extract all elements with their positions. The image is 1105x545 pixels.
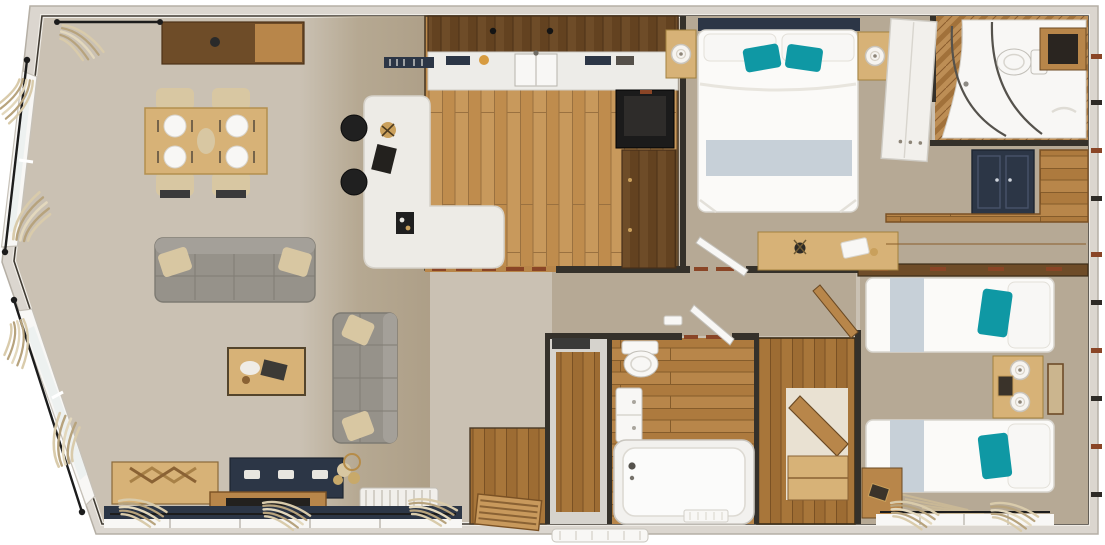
wall-hall-bottom-left <box>610 333 682 340</box>
plate <box>226 146 248 168</box>
headboard <box>698 18 860 31</box>
shower-drain <box>963 81 968 86</box>
bed-runner <box>890 278 924 352</box>
chevron-tv-cabinet <box>112 462 218 504</box>
floor-plan-svg <box>0 0 1105 545</box>
large-sofa <box>155 238 315 302</box>
ensuite-toilet <box>997 49 1031 75</box>
gold-dish <box>870 248 878 256</box>
tap <box>533 50 538 55</box>
bar-stool <box>341 115 367 141</box>
plate <box>226 115 248 137</box>
chair-base <box>216 190 246 198</box>
table-centrepiece <box>197 128 215 154</box>
downlight <box>547 28 553 34</box>
chair-base <box>160 190 190 198</box>
teal-pillow <box>785 44 824 73</box>
rail-finial <box>54 19 60 25</box>
utility-top-unit <box>552 338 590 349</box>
double-bed <box>698 30 858 212</box>
island-decor-frame <box>396 212 414 234</box>
wall-art <box>1048 364 1063 414</box>
bath-tap <box>628 462 635 469</box>
wall-cabinets <box>428 16 678 52</box>
shelf-niche <box>1040 28 1086 70</box>
floor-plan-image <box>0 0 1105 545</box>
hallway-carpet <box>552 272 856 336</box>
front-door <box>475 494 542 531</box>
wall-utility-left <box>545 338 550 524</box>
bed-runner <box>706 140 852 176</box>
plate <box>164 115 186 137</box>
worktop-item <box>616 56 634 65</box>
decor-bowl <box>479 55 489 65</box>
bath <box>614 440 754 524</box>
appliance-door <box>624 96 666 136</box>
coffee-table-decor <box>240 361 260 375</box>
dining-chair <box>156 88 194 110</box>
hall-mat <box>664 316 682 325</box>
downlight <box>490 28 496 34</box>
shelf-with-books <box>384 57 434 68</box>
coffee-table-bowl <box>242 376 250 384</box>
pillow <box>1008 282 1050 348</box>
wall-ensuite-bottom <box>930 140 1088 146</box>
base-cabinets <box>622 150 676 268</box>
dining-chair <box>212 88 250 110</box>
sideboard-decor <box>210 37 220 47</box>
sideboard-top-section <box>255 24 302 62</box>
table-lamp <box>672 45 691 64</box>
pillow <box>1008 424 1050 488</box>
media-unit-handles <box>244 470 328 479</box>
room-ensuite <box>942 20 1086 138</box>
worktop-item <box>446 56 470 65</box>
twin-corner-desk <box>862 468 902 518</box>
worktop-item <box>585 56 611 65</box>
room-airing-cupboard <box>786 388 848 500</box>
shared-nightstand <box>993 356 1043 418</box>
teal-pillow <box>977 432 1012 479</box>
wall-twin-left <box>855 330 861 524</box>
bar-stool <box>341 169 367 195</box>
white-wardrobe <box>881 19 937 162</box>
toilet <box>624 351 658 377</box>
table-lamp <box>866 47 885 66</box>
photo-frame <box>998 376 1013 396</box>
coffee-table <box>228 348 305 395</box>
teal-pillow <box>977 288 1013 338</box>
small-sofa <box>333 313 397 443</box>
twin-bed-1 <box>866 278 1054 352</box>
wall-utility-bathroom <box>607 338 612 524</box>
plate <box>164 146 186 168</box>
navy-cabinet <box>972 150 1034 214</box>
living-rug-darker-carpet <box>300 16 430 524</box>
rail-finial <box>157 19 163 25</box>
room-utility-cupboard <box>552 338 590 349</box>
utility-inner-wood <box>556 352 600 512</box>
dressing-table <box>758 232 898 270</box>
external-step <box>552 529 648 542</box>
appliance-detail <box>640 90 652 94</box>
